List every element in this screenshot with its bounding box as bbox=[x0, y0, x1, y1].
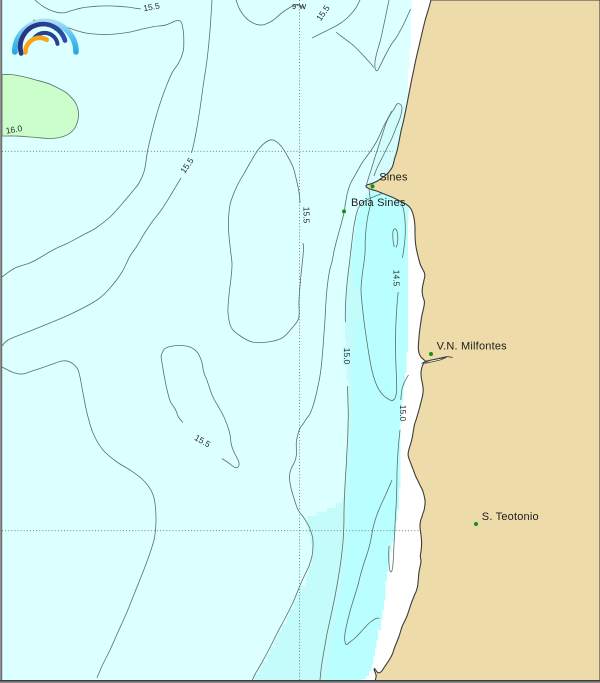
svg-text:15.0: 15.0 bbox=[342, 348, 352, 365]
svg-text:14.5: 14.5 bbox=[392, 270, 402, 287]
svg-text:Boia Sines: Boia Sines bbox=[351, 197, 406, 209]
svg-text:15.0: 15.0 bbox=[398, 405, 408, 422]
svg-text:9°W: 9°W bbox=[292, 2, 307, 11]
svg-text:15.5: 15.5 bbox=[302, 207, 312, 224]
svg-text:Sines: Sines bbox=[379, 171, 408, 183]
svg-text:S. Teotonio: S. Teotonio bbox=[482, 511, 539, 523]
svg-text:V.N. Milfontes: V.N. Milfontes bbox=[437, 340, 508, 352]
